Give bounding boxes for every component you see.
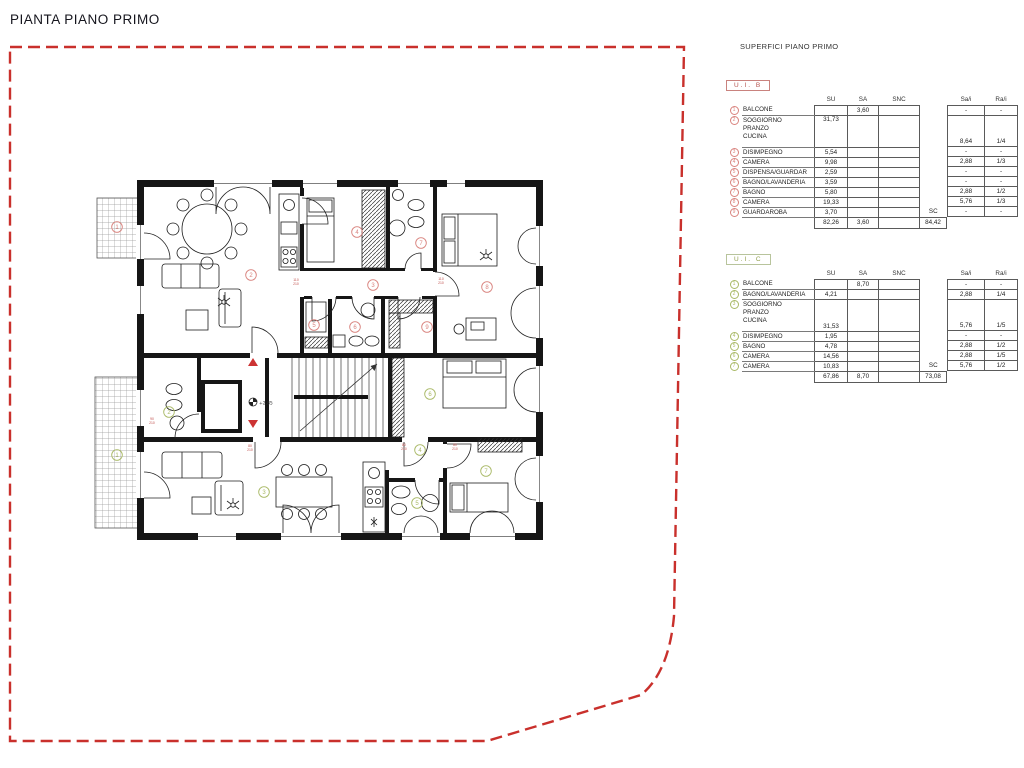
furniture [162, 189, 522, 532]
su-cell [815, 106, 848, 116]
sai-header: Sa/i [948, 269, 985, 280]
sai-cell: 5,76 [948, 361, 985, 371]
table-row: 8,641/4 [948, 116, 1018, 147]
table-row: 1BALCONE8,70 [726, 280, 947, 290]
table-row: 6BAGNO/LAVANDERIA3,59 [726, 178, 947, 188]
cell [985, 217, 1018, 228]
row-number-badge: 8 [730, 198, 739, 207]
su-cell: 14,56 [815, 352, 848, 362]
sa-cell [848, 208, 879, 218]
snc-cell [879, 106, 920, 116]
room-name-cell: BAGNO/LAVANDERIA [742, 290, 815, 300]
table-row: 2,881/2 [948, 341, 1018, 351]
sai-cell: - [948, 331, 985, 341]
sa-cell [848, 178, 879, 188]
rai-cell: - [985, 207, 1018, 217]
room-number: 6 [353, 325, 357, 331]
sc-label-cell [920, 168, 947, 178]
snc-cell [879, 198, 920, 208]
doors [144, 187, 536, 533]
sc-label-cell [920, 332, 947, 342]
table-row: 4CAMERA9,98 [726, 158, 947, 168]
column-header [742, 95, 815, 106]
table-row: 7BAGNO5,80 [726, 188, 947, 198]
row-number-badge: 6 [730, 352, 739, 361]
stair-direction-arrows [248, 358, 258, 428]
sa-cell [848, 352, 879, 362]
room-number: 4 [418, 448, 422, 454]
snc-cell [879, 168, 920, 178]
table-row: -- [948, 147, 1018, 157]
table-row: -- [948, 167, 1018, 177]
row-number-badge: 4 [730, 158, 739, 167]
su-cell: 4,78 [815, 342, 848, 352]
unit-table-B: U.I. BSUSASNC1BALCONE3,602SOGGIORNO PRAN… [726, 74, 1018, 229]
aeroilluminant-table: Sa/iRa/i--2,881/45,761/5--2,881/22,881/5… [947, 269, 1018, 381]
column-header [726, 95, 742, 106]
table-row: 4DISIMPEGNO1,95 [726, 332, 947, 342]
su-cell: 19,33 [815, 198, 848, 208]
row-number-cell: 5 [726, 342, 742, 352]
sc-label-cell [920, 352, 947, 362]
table-row: 2,881/3 [948, 157, 1018, 167]
sc-label-cell [920, 158, 947, 168]
surface-table: SUSASNC1BALCONE8,702BAGNO/LAVANDERIA4,21… [726, 269, 947, 383]
table-row: 5BAGNO4,78 [726, 342, 947, 352]
surface-table: SUSASNC1BALCONE3,602SOGGIORNO PRANZO CUC… [726, 95, 947, 229]
row-number-cell: 2 [726, 290, 742, 300]
room-name-cell: DISPENSA/GUARDAR [742, 168, 815, 178]
sai-cell: 2,88 [948, 187, 985, 197]
sa-cell [848, 148, 879, 158]
row-number-badge: 2 [730, 116, 739, 125]
sc-label-cell: SC [920, 208, 947, 218]
cell [726, 372, 742, 383]
sai-cell: - [948, 147, 985, 157]
table-row: 2SOGGIORNO PRANZO CUCINA31,73 [726, 116, 947, 148]
su-cell: 31,73 [815, 116, 848, 148]
snc-cell [879, 188, 920, 198]
rai-cell: 1/2 [985, 341, 1018, 351]
row-number-cell: 1 [726, 280, 742, 290]
row-number-cell: 4 [726, 332, 742, 342]
row-number-cell: 3 [726, 300, 742, 332]
table-row: 3SOGGIORNO PRANZO CUCINA31,53 [726, 300, 947, 332]
room-name-cell: CAMERA [742, 198, 815, 208]
sc-label-cell: SC [920, 362, 947, 372]
row-number-cell: 2 [726, 116, 742, 148]
sai-cell: - [948, 280, 985, 290]
table-row: 1BALCONE3,60 [726, 106, 947, 116]
su-cell: 4,21 [815, 290, 848, 300]
table-row: 5DISPENSA/GUARDAR2,59 [726, 168, 947, 178]
column-header: SU [815, 269, 848, 280]
su-cell: 3,59 [815, 178, 848, 188]
sa-cell [848, 290, 879, 300]
sc-label-cell [920, 300, 947, 332]
row-number-badge: 1 [730, 280, 739, 289]
row-number-badge: 9 [730, 208, 739, 217]
column-header: SNC [879, 269, 920, 280]
rai-cell: - [985, 280, 1018, 290]
room-number: 2 [249, 273, 253, 279]
rai-cell: - [985, 167, 1018, 177]
rai-cell: 1/5 [985, 300, 1018, 331]
sa-cell [848, 188, 879, 198]
column-header: SNC [879, 95, 920, 106]
sc-label-cell [920, 280, 947, 290]
room-number: 2 [167, 410, 171, 416]
snc-cell [879, 290, 920, 300]
snc-cell [879, 116, 920, 148]
snc-cell [879, 280, 920, 290]
row-number-badge: 7 [730, 362, 739, 371]
row-number-cell: 7 [726, 188, 742, 198]
table-row: -- [948, 106, 1018, 116]
room-number: 7 [484, 469, 488, 475]
snc-cell [879, 362, 920, 372]
room-number: 5 [312, 323, 316, 329]
su-cell: 2,59 [815, 168, 848, 178]
room-name-cell: BALCONE [742, 280, 815, 290]
row-number-cell: 8 [726, 198, 742, 208]
table-row: 3DISIMPEGNO5,54 [726, 148, 947, 158]
room-number: 5 [415, 501, 419, 507]
snc-cell [879, 352, 920, 362]
rai-cell: - [985, 177, 1018, 187]
su-cell: 3,70 [815, 208, 848, 218]
level-marker: +2.85 [249, 398, 273, 407]
room-name-cell: GUARDAROBA [742, 208, 815, 218]
sc-label-cell [920, 178, 947, 188]
sai-cell: 8,64 [948, 116, 985, 147]
sc-label-cell [920, 106, 947, 116]
table-row: -- [948, 207, 1018, 217]
rai-cell: 1/2 [985, 361, 1018, 371]
totals-row: 67,868,7073,08 [726, 372, 947, 383]
sai-cell: - [948, 207, 985, 217]
sc-label-cell [920, 148, 947, 158]
snc-cell [879, 332, 920, 342]
room-name-cell: CAMERA [742, 362, 815, 372]
legend-title: SUPERFICI PIANO PRIMO [740, 42, 838, 51]
row-number-cell: 9 [726, 208, 742, 218]
cell [948, 371, 985, 382]
room-name-cell: SOGGIORNO PRANZO CUCINA [742, 116, 815, 148]
rai-cell: 1/4 [985, 116, 1018, 147]
room-number: 7 [419, 241, 423, 247]
column-header [920, 269, 947, 280]
sa-cell [848, 332, 879, 342]
rai-cell: - [985, 331, 1018, 341]
su-cell [815, 280, 848, 290]
aeroilluminant-table: Sa/iRa/i--8,641/4--2,881/3----2,881/25,7… [947, 95, 1018, 227]
door-size-label: 80210 [401, 443, 407, 451]
table-row: 9GUARDAROBA3,70SC [726, 208, 947, 218]
table-row: 2,881/5 [948, 351, 1018, 361]
sc-label-cell [920, 198, 947, 208]
room-number: 9 [425, 325, 429, 331]
table-row: 2,881/2 [948, 187, 1018, 197]
svg-text:+2.85: +2.85 [259, 401, 273, 407]
totals-row: 82,263,6084,42 [726, 218, 947, 229]
su-cell: 5,54 [815, 148, 848, 158]
row-number-badge: 1 [730, 106, 739, 115]
row-number-cell: 3 [726, 148, 742, 158]
row-number-cell: 6 [726, 178, 742, 188]
table-row: 5,761/2 [948, 361, 1018, 371]
row-number-cell: 4 [726, 158, 742, 168]
cell [726, 218, 742, 229]
row-number-badge: 2 [730, 290, 739, 299]
room-name-cell: CAMERA [742, 158, 815, 168]
room-name-cell: DISIMPEGNO [742, 148, 815, 158]
stairs [292, 358, 383, 437]
row-number-cell: 6 [726, 352, 742, 362]
rai-cell: 1/2 [985, 187, 1018, 197]
su-cell: 10,83 [815, 362, 848, 372]
column-header: SU [815, 95, 848, 106]
room-name-cell: BALCONE [742, 106, 815, 116]
table-row: -- [948, 177, 1018, 187]
snc-total [879, 372, 920, 383]
door-size-label: 80210 [247, 444, 253, 452]
row-number-badge: 3 [730, 300, 739, 309]
table-row: -- [948, 331, 1018, 341]
cell [985, 371, 1018, 382]
rai-cell: - [985, 106, 1018, 116]
snc-cell [879, 158, 920, 168]
sa-cell [848, 342, 879, 352]
table-row: 2,881/4 [948, 290, 1018, 300]
rai-cell: 1/3 [985, 157, 1018, 167]
table-row: 5,761/5 [948, 300, 1018, 331]
sai-cell: - [948, 177, 985, 187]
sa-cell [848, 362, 879, 372]
sai-cell: - [948, 167, 985, 177]
room-number: 6 [428, 392, 432, 398]
row-number-badge: 7 [730, 188, 739, 197]
walls [137, 180, 543, 540]
table-row: 7CAMERA10,83SC [726, 362, 947, 372]
sai-header: Sa/i [948, 95, 985, 106]
snc-total [879, 218, 920, 229]
page: PIANTA PIANO PRIMO [0, 0, 1024, 768]
sai-cell: 5,76 [948, 197, 985, 207]
column-header: SA [848, 269, 879, 280]
column-header [726, 269, 742, 280]
table-row: 2BAGNO/LAVANDERIA4,21 [726, 290, 947, 300]
sa-cell [848, 116, 879, 148]
rai-cell: 1/3 [985, 197, 1018, 207]
sc-label-cell [920, 116, 947, 148]
su-total: 67,86 [815, 372, 848, 383]
room-name-cell: CAMERA [742, 352, 815, 362]
room-name-cell: BAGNO/LAVANDERIA [742, 178, 815, 188]
column-header [742, 269, 815, 280]
sai-cell: 2,88 [948, 341, 985, 351]
snc-cell [879, 148, 920, 158]
sa-cell: 8,70 [848, 280, 879, 290]
sai-cell: 2,88 [948, 157, 985, 167]
sa-total: 8,70 [848, 372, 879, 383]
su-cell: 31,53 [815, 300, 848, 332]
sc-label-cell [920, 342, 947, 352]
column-header [920, 95, 947, 106]
su-total: 82,26 [815, 218, 848, 229]
sa-cell [848, 300, 879, 332]
sa-cell [848, 158, 879, 168]
room-number: 3 [262, 490, 266, 496]
table-row: 6CAMERA14,56 [726, 352, 947, 362]
sc-total: 73,08 [920, 372, 947, 383]
room-name-cell: BAGNO [742, 188, 815, 198]
snc-cell [879, 208, 920, 218]
sa-total: 3,60 [848, 218, 879, 229]
snc-cell [879, 342, 920, 352]
snc-cell [879, 300, 920, 332]
row-number-cell: 1 [726, 106, 742, 116]
room-number: 8 [485, 285, 489, 291]
row-number-badge: 5 [730, 342, 739, 351]
su-cell: 5,80 [815, 188, 848, 198]
unit-label: U.I. B [726, 80, 770, 91]
rai-cell: 1/5 [985, 351, 1018, 361]
sc-label-cell [920, 188, 947, 198]
room-name-cell: SOGGIORNO PRANZO CUCINA [742, 300, 815, 332]
unit-table-C: U.I. CSUSASNC1BALCONE8,702BAGNO/LAVANDER… [726, 248, 1018, 383]
table-row: 8CAMERA19,33 [726, 198, 947, 208]
sa-cell: 3,60 [848, 106, 879, 116]
room-number: 3 [371, 283, 375, 289]
row-number-badge: 4 [730, 332, 739, 341]
door-size-label: 110210 [438, 277, 444, 285]
row-number-cell: 7 [726, 362, 742, 372]
sai-cell: 2,88 [948, 290, 985, 300]
room-number: 4 [355, 230, 359, 236]
sc-label-cell [920, 290, 947, 300]
table-row: -- [948, 280, 1018, 290]
row-number-badge: 5 [730, 168, 739, 177]
balcony-upper [97, 198, 142, 258]
su-cell: 9,98 [815, 158, 848, 168]
room-name-cell: DISIMPEGNO [742, 332, 815, 342]
sai-cell: 2,88 [948, 351, 985, 361]
unit-label: U.I. C [726, 254, 771, 265]
rai-cell: 1/4 [985, 290, 1018, 300]
cell [948, 217, 985, 228]
sai-cell: 5,76 [948, 300, 985, 331]
snc-cell [879, 178, 920, 188]
table-row: 5,761/3 [948, 197, 1018, 207]
room-name-cell: BAGNO [742, 342, 815, 352]
sai-cell: - [948, 106, 985, 116]
sc-total: 84,42 [920, 218, 947, 229]
sa-cell [848, 198, 879, 208]
door-size-label: 90210 [149, 417, 155, 425]
sa-cell [848, 168, 879, 178]
rai-cell: - [985, 147, 1018, 157]
row-number-badge: 3 [730, 148, 739, 157]
rai-header: Ra/i [985, 95, 1018, 106]
rai-header: Ra/i [985, 269, 1018, 280]
column-header: SA [848, 95, 879, 106]
su-cell: 1,95 [815, 332, 848, 342]
cell [742, 218, 815, 229]
row-number-badge: 6 [730, 178, 739, 187]
row-number-cell: 5 [726, 168, 742, 178]
door-size-label: 110210 [293, 278, 299, 286]
cell [742, 372, 815, 383]
